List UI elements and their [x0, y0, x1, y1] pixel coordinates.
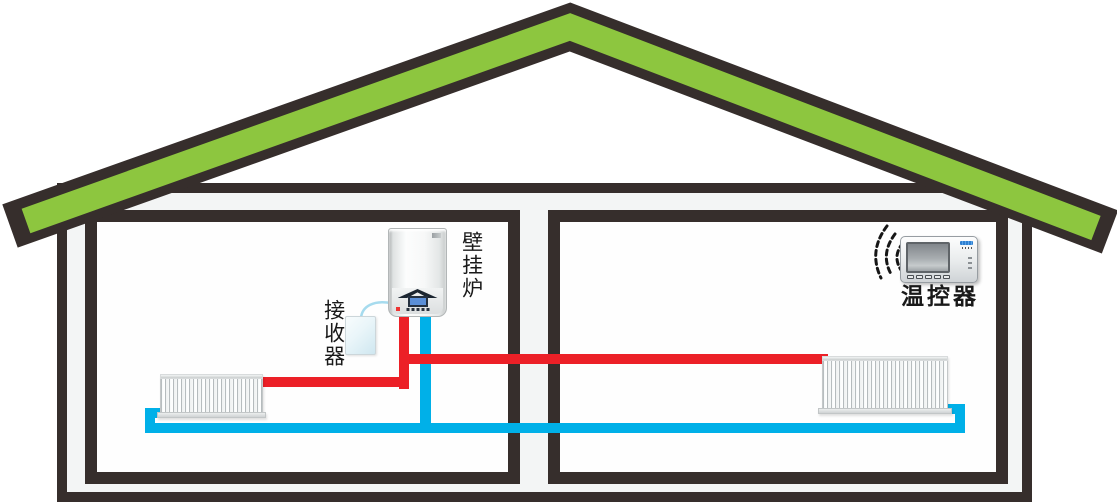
radiator-fins: [822, 361, 948, 408]
cold-pipe-boiler-drop: [420, 308, 431, 433]
radiator-right: [822, 356, 948, 414]
thermostat: [900, 236, 978, 283]
radiator-fins: [160, 379, 263, 412]
wall-hung-boiler: [388, 228, 447, 317]
label-thermostat: 温控器: [901, 284, 979, 309]
radiator-base: [818, 408, 952, 414]
thermostat-side-marks: [968, 257, 972, 271]
hot-pipe-to-left-radiator: [262, 377, 409, 387]
boiler-control-panel: [392, 288, 443, 314]
cold-pipe-left-leg: [145, 408, 155, 433]
wireless-receiver: [345, 316, 376, 355]
radiator-base: [157, 412, 266, 418]
thermostat-brand-text: [962, 247, 973, 249]
boiler-brand-logo: [432, 233, 441, 238]
label-receiver: 接收器: [321, 299, 344, 368]
room-left: [85, 210, 520, 484]
heating-system-diagram: 壁挂炉 接收器 温控器: [0, 0, 1117, 502]
thermostat-buttons: [907, 275, 950, 279]
radiator-left: [160, 374, 263, 418]
boiler-lcd-display: [408, 296, 428, 307]
cold-pipe-right-leg: [955, 404, 965, 433]
cold-pipe-floor-run: [145, 423, 965, 433]
thermostat-brand-logo: [960, 241, 973, 245]
boiler-buttons: [406, 308, 429, 311]
hot-pipe-to-right-radiator: [399, 354, 828, 364]
thermostat-lcd-screen: [906, 242, 950, 273]
label-boiler: 壁挂炉: [459, 231, 482, 300]
boiler-power-led: [396, 307, 400, 311]
